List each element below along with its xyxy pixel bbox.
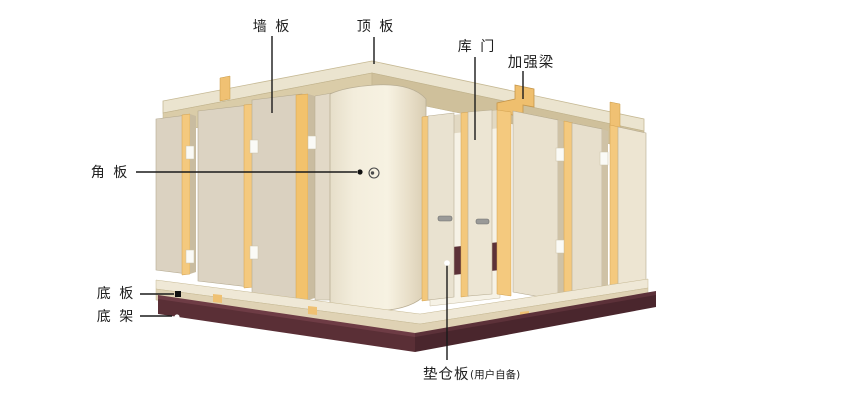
bottom-panel-pointer-dot: [175, 291, 181, 297]
label-wall-panel: 墙 板: [253, 19, 291, 35]
door-area: [422, 110, 511, 306]
label-pallet-note: (用户自备): [470, 368, 520, 381]
label-pallet: 垫仓板: [423, 365, 470, 383]
diagram-illustration: 墙 板 顶 板 库 门 加强梁 角 板 底 板 底 架 垫仓板 (用户自备): [0, 0, 849, 409]
door-handle: [438, 216, 452, 221]
label-corner-panel: 角 板: [91, 165, 129, 181]
wall-panels-right: [513, 111, 646, 300]
label-door: 库 门: [458, 39, 496, 55]
wall-panels-left: [156, 92, 338, 301]
door-handle: [476, 219, 489, 224]
label-bottom-panel: 底 板: [97, 286, 135, 302]
label-bottom-frame: 底 架: [97, 309, 135, 325]
cold-room-diagram: 墙 板 顶 板 库 门 加强梁 角 板 底 板 底 架 垫仓板 (用户自备): [0, 0, 849, 409]
door-leaf: [428, 113, 454, 300]
corner-panel-pointer-dot: [357, 169, 362, 174]
bottom-frame-pointer-dot: [174, 314, 179, 319]
corner-panel-shape: [330, 85, 426, 312]
pallet-pointer-dot: [444, 260, 450, 266]
roof-gold-tab: [220, 76, 230, 101]
label-top-panel: 顶 板: [357, 19, 395, 35]
door-leaf: [468, 110, 492, 296]
label-reinforcement-beam: 加强梁: [508, 54, 555, 71]
